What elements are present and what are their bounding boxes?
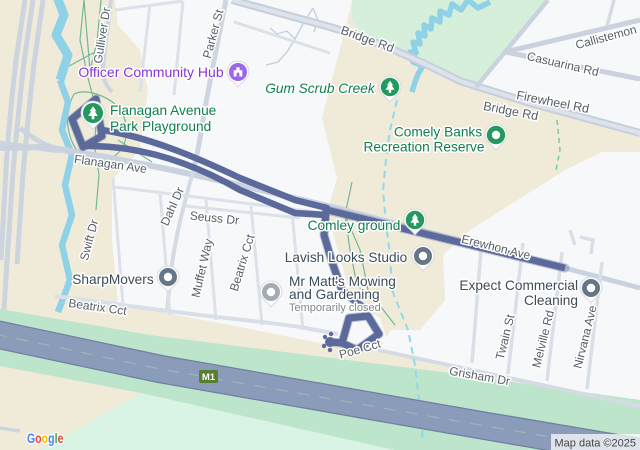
svg-text:Flanagan Avenue: Flanagan Avenue — [110, 103, 216, 118]
svg-text:Temporarily closed: Temporarily closed — [289, 302, 381, 314]
svg-text:Comely Banks: Comely Banks — [394, 125, 482, 140]
svg-text:Officer Community Hub: Officer Community Hub — [78, 64, 223, 80]
svg-text:Park Playground: Park Playground — [110, 119, 211, 134]
svg-text:SharpMovers: SharpMovers — [72, 272, 154, 287]
svg-text:o: o — [35, 431, 41, 447]
svg-text:M1: M1 — [202, 372, 216, 383]
svg-text:Comley ground: Comley ground — [308, 218, 401, 233]
svg-text:Expect Commercial: Expect Commercial — [459, 278, 578, 293]
svg-text:Recreation Reserve: Recreation Reserve — [364, 140, 485, 155]
svg-text:Lavish Looks Studio: Lavish Looks Studio — [285, 250, 408, 265]
svg-text:and Gardening: and Gardening — [289, 287, 380, 302]
svg-text:e: e — [58, 431, 64, 447]
svg-text:Gum Scrub Creek: Gum Scrub Creek — [265, 81, 376, 96]
svg-text:G: G — [27, 431, 35, 447]
svg-text:g: g — [48, 431, 54, 447]
svg-text:Cleaning: Cleaning — [524, 293, 578, 308]
svg-text:o: o — [42, 431, 48, 447]
svg-text:Map data ©2025: Map data ©2025 — [555, 438, 637, 450]
